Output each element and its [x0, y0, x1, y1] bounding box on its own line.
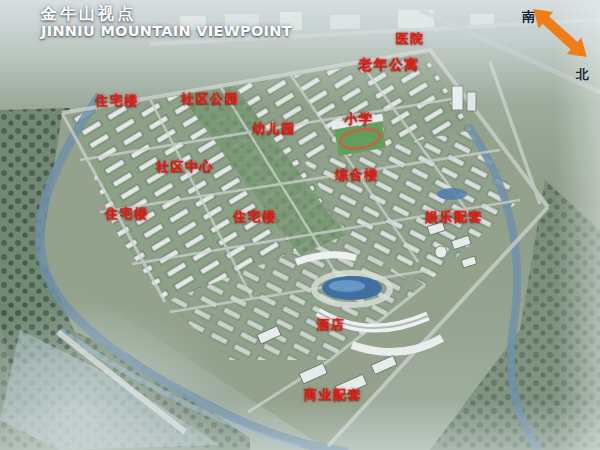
map-label-primary-school: 小学 — [345, 110, 374, 128]
title-chinese: 金牛山视点 — [41, 5, 292, 23]
map-label-residential-nw: 住宅楼 — [95, 92, 139, 110]
jinniu-viewpoint-rendering: 金牛山视点 JINNIU MOUNTAIN VIEWPOINT 南 北 医院 老… — [0, 0, 600, 450]
map-label-commercial-amenities: 商业配套 — [304, 386, 362, 404]
map-label-hospital: 医院 — [396, 30, 425, 48]
aerial-masterplan-art — [0, 0, 600, 450]
map-label-community-center: 社区中心 — [156, 158, 214, 176]
compass-north-label: 北 — [576, 66, 589, 84]
compass: 南 北 — [514, 2, 600, 90]
map-label-senior-apartments: 老年公寓 — [358, 56, 420, 74]
map-label-residential-west: 住宅楼 — [105, 205, 149, 223]
title-english: JINNIU MOUNTAIN VIEWPOINT — [41, 23, 292, 40]
map-label-residential-central: 住宅楼 — [233, 208, 277, 226]
map-label-kindergarten: 幼儿园 — [252, 120, 296, 138]
viewpoint-title: 金牛山视点 JINNIU MOUNTAIN VIEWPOINT — [41, 5, 292, 40]
map-label-hotel: 酒店 — [317, 316, 346, 334]
compass-arrow-icon — [525, 0, 596, 67]
map-label-mixed-use-building: 综合楼 — [335, 166, 379, 184]
map-label-community-park: 社区公园 — [181, 90, 239, 108]
map-label-entertainment-amenities: 娱乐配套 — [425, 208, 483, 226]
